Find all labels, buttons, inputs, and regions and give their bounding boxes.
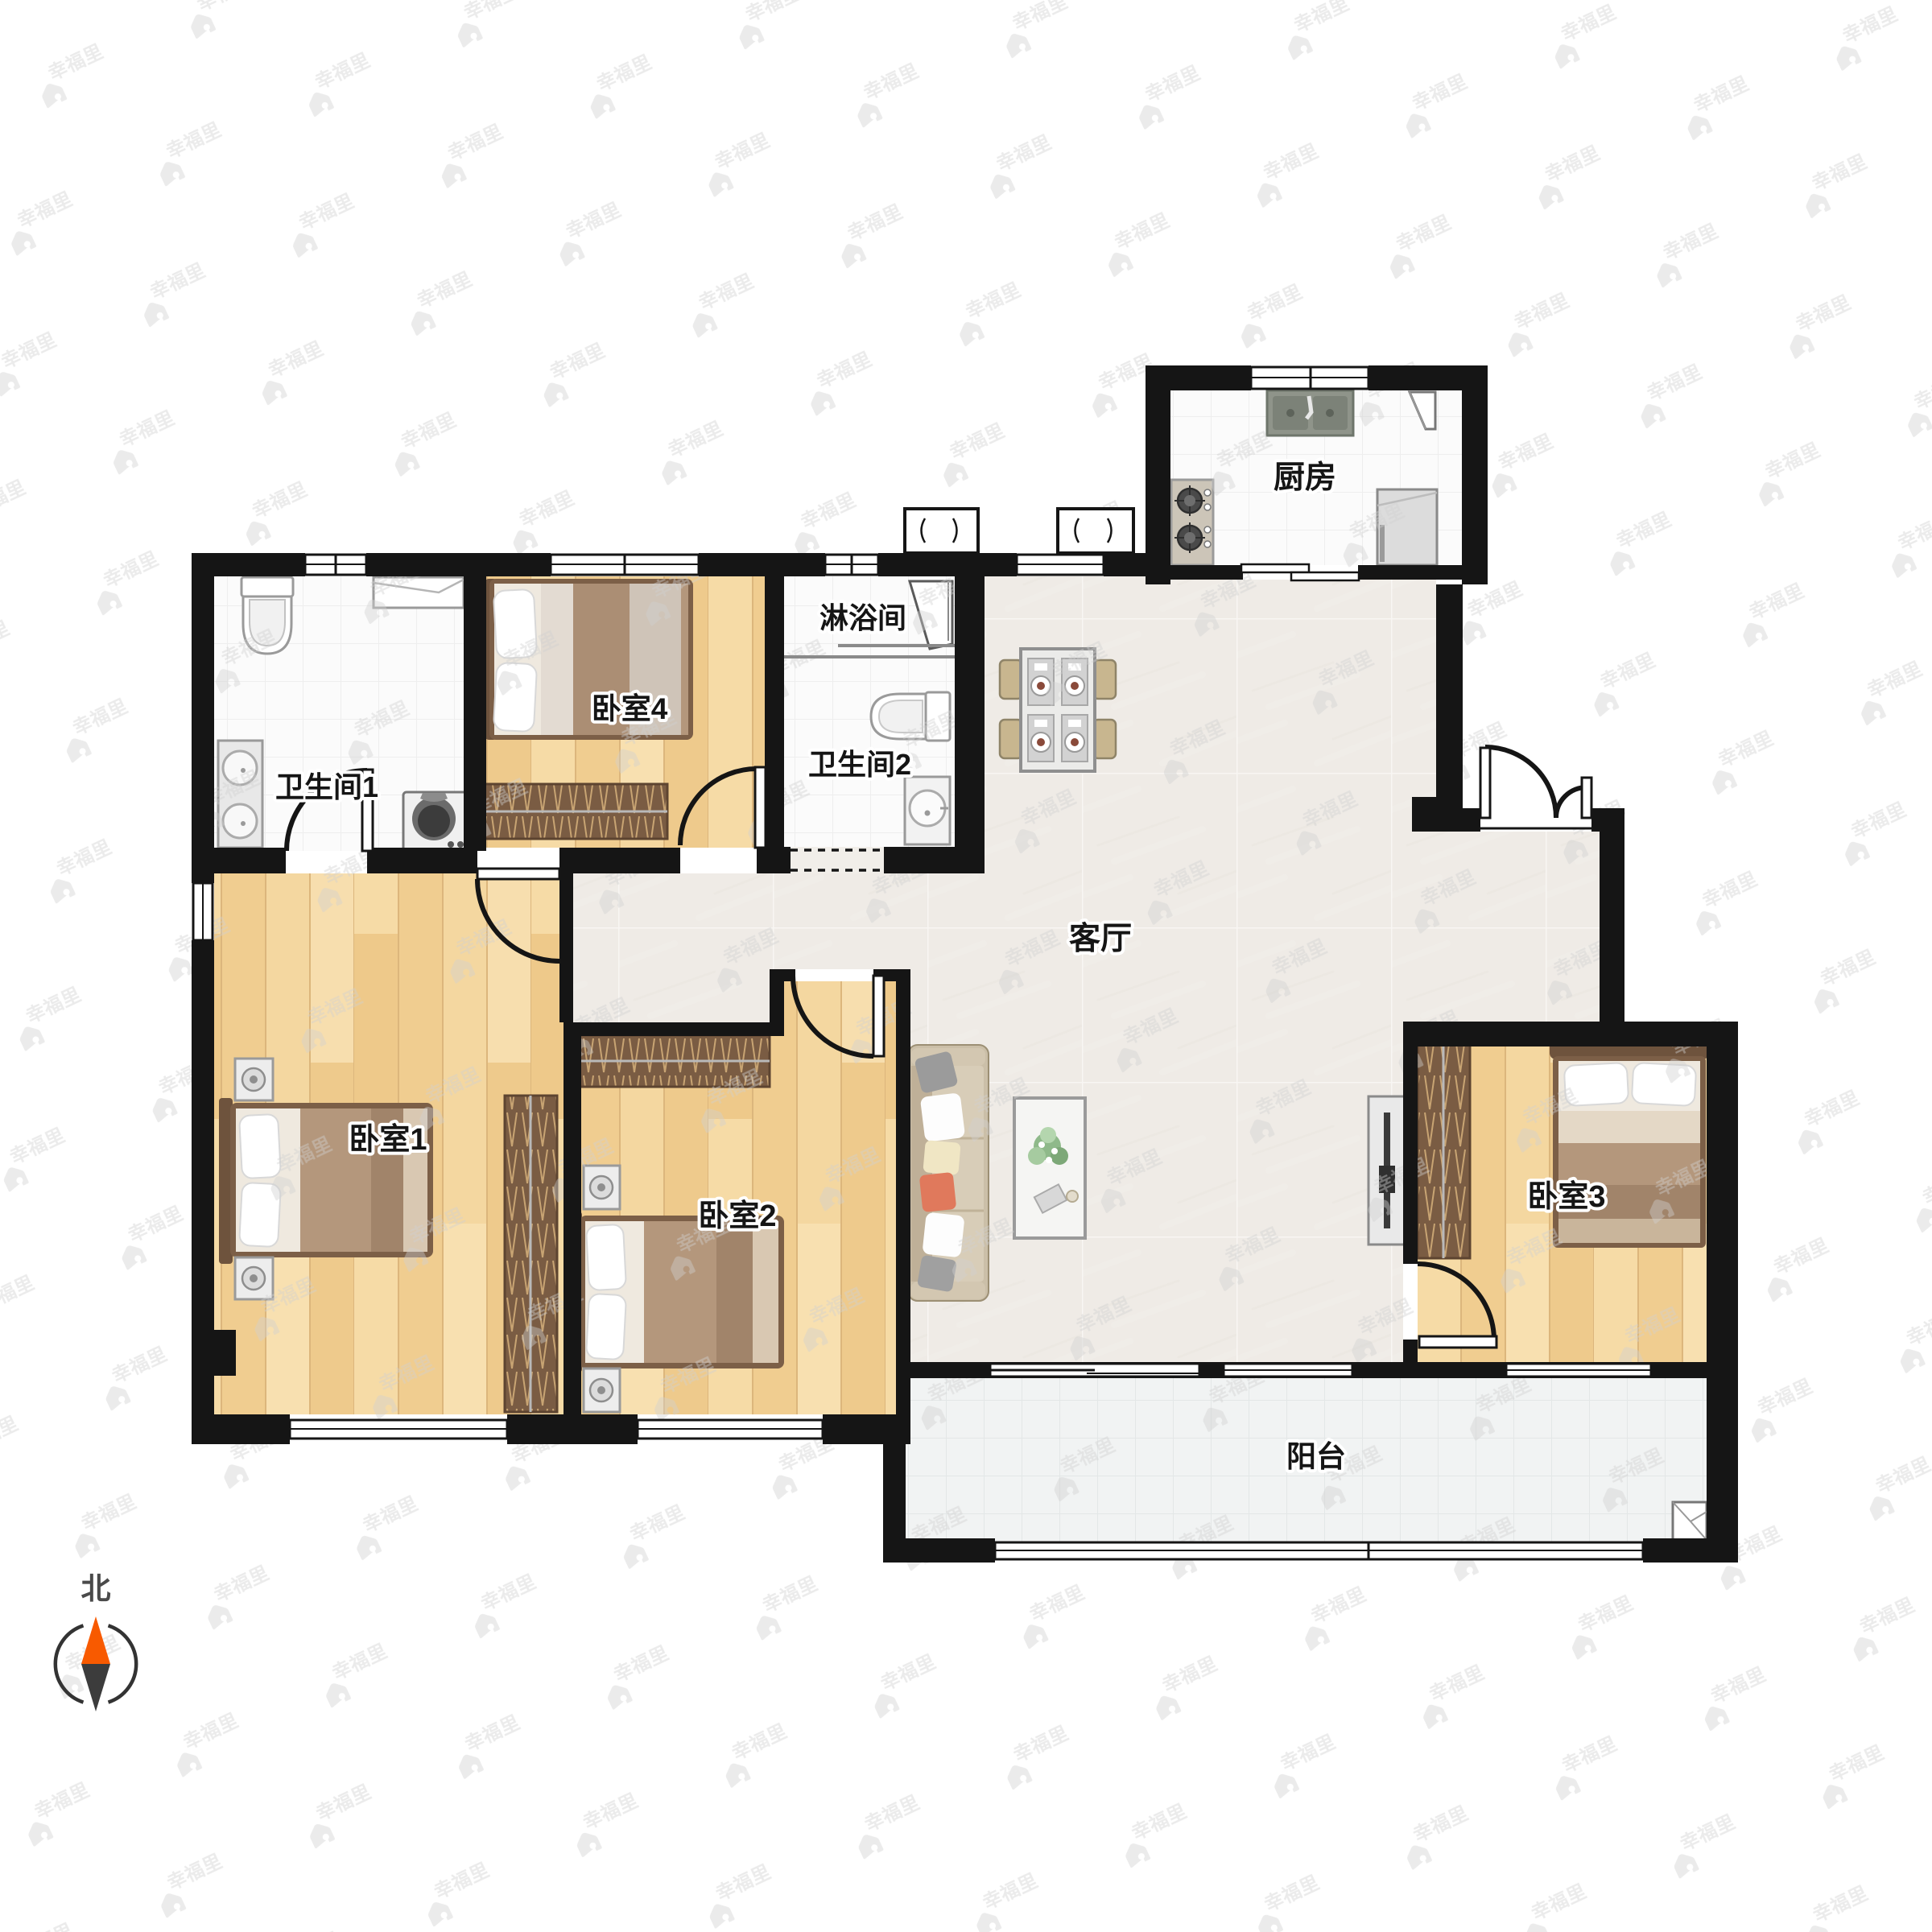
svg-text:北: 北 <box>81 1572 111 1605</box>
svg-text:卧室2: 卧室2 <box>698 1199 776 1233</box>
svg-text:卫生间2: 卫生间2 <box>808 748 911 781</box>
svg-text:厨房: 厨房 <box>1274 460 1336 495</box>
svg-text:阳台: 阳台 <box>1286 1440 1346 1473</box>
svg-text:卫生间1: 卫生间1 <box>275 770 378 803</box>
svg-text:客厅: 客厅 <box>1069 922 1132 956</box>
svg-text:卧室3: 卧室3 <box>1527 1179 1605 1214</box>
svg-text:淋浴间: 淋浴间 <box>819 601 906 634</box>
svg-text:卧室1: 卧室1 <box>349 1122 427 1157</box>
svg-text:卧室4: 卧室4 <box>592 691 668 725</box>
